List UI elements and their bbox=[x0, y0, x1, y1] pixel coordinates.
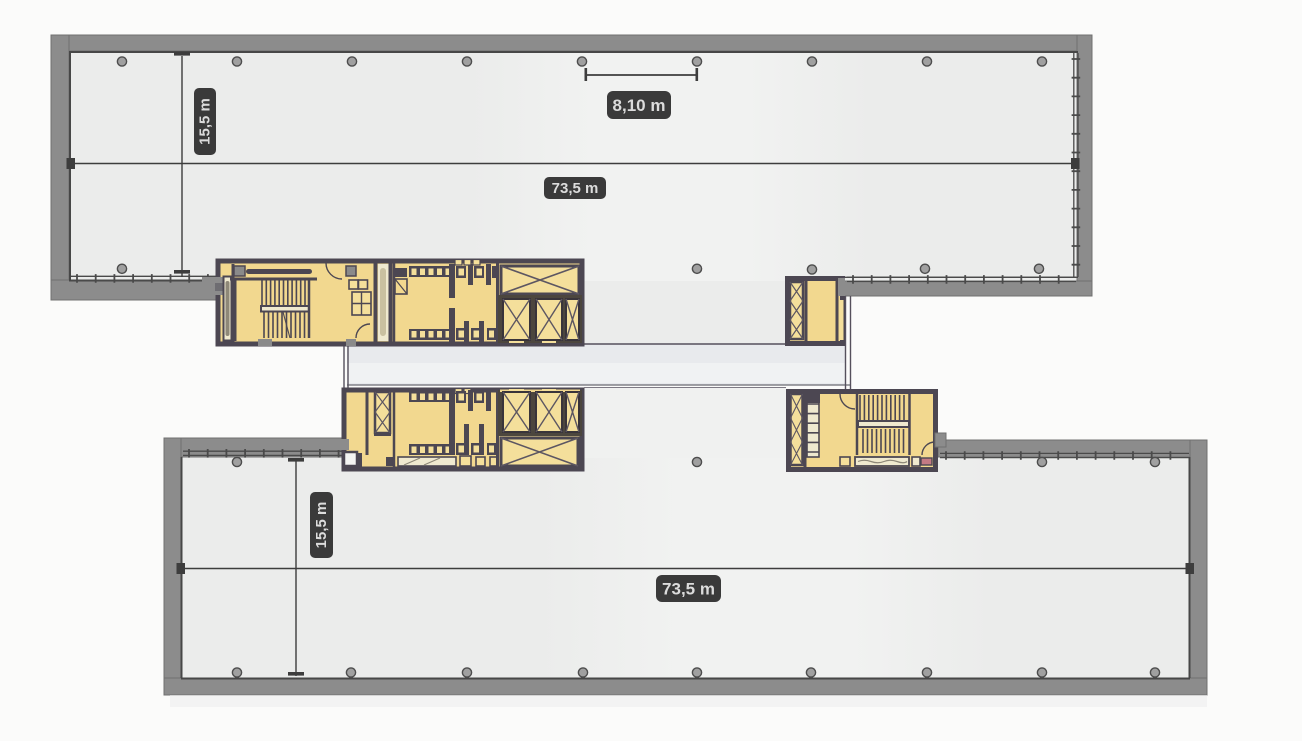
svg-text:73,5 m: 73,5 m bbox=[552, 180, 599, 197]
svg-text:15,5 m: 15,5 m bbox=[313, 502, 330, 549]
svg-text:73,5 m: 73,5 m bbox=[662, 580, 715, 599]
svg-text:15,5 m: 15,5 m bbox=[197, 98, 214, 145]
svg-text:8,10 m: 8,10 m bbox=[613, 96, 666, 115]
